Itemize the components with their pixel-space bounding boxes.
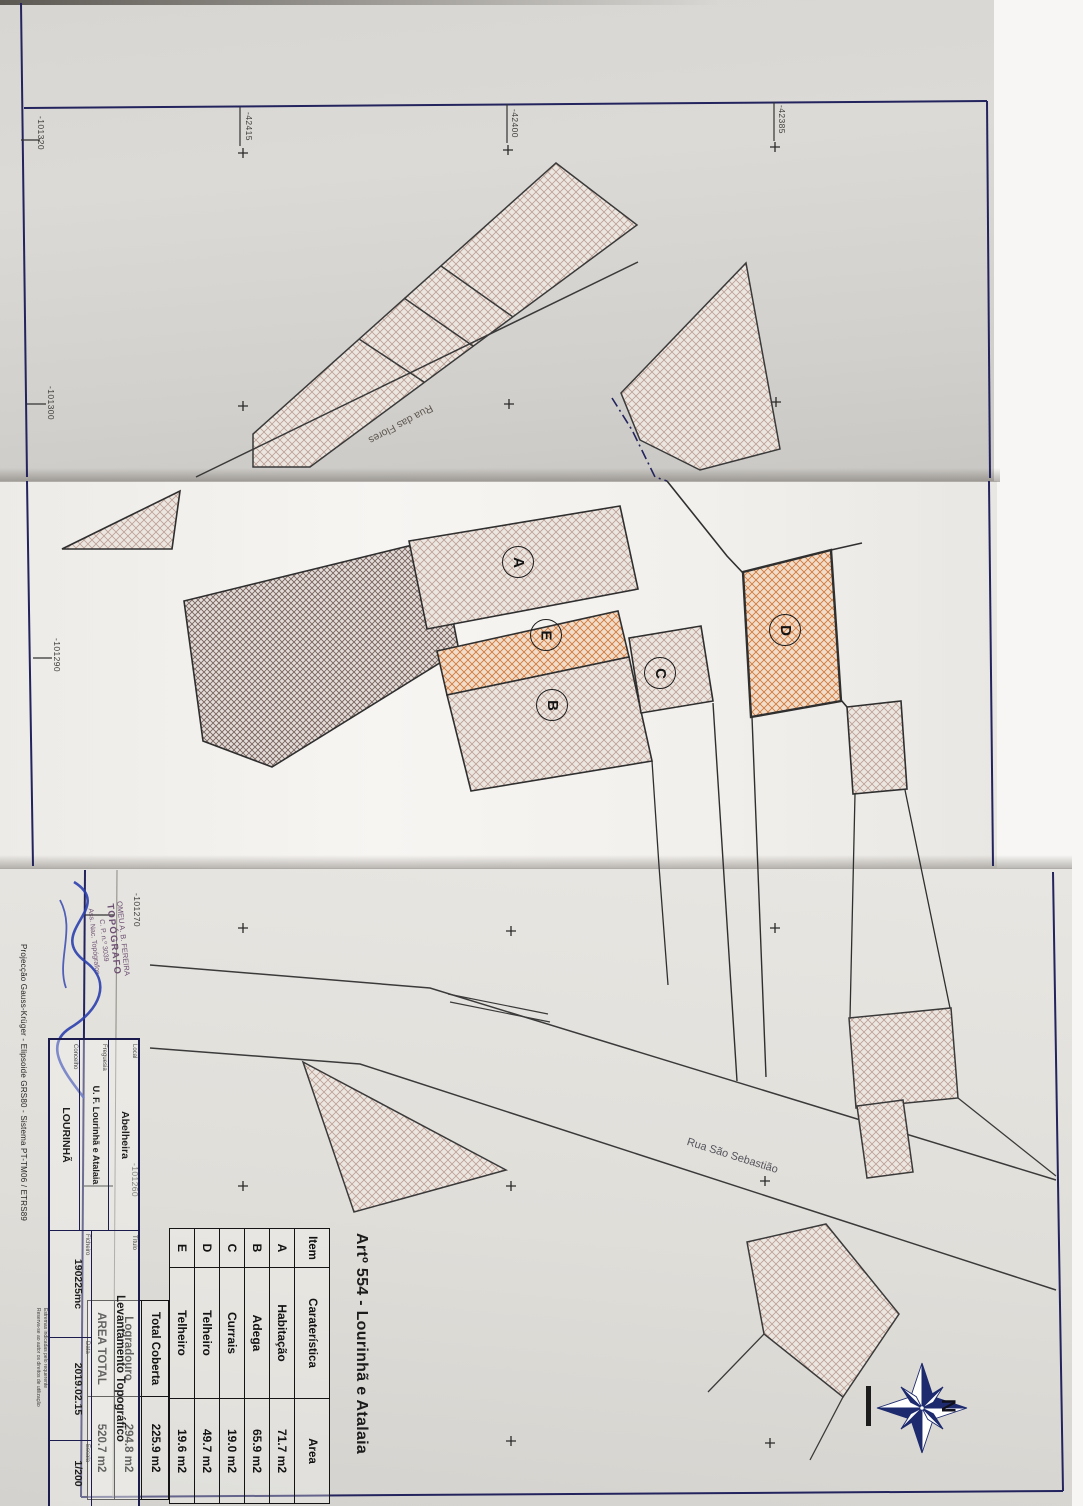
header-area: Area [295, 1399, 330, 1504]
projection-note: Projecção Gauss-Krüger - Elipsoide GRS80… [19, 944, 28, 1221]
coord-top-2: -42400 [510, 109, 520, 138]
surveyor-stamp: OMEU A. B. FEREIRA TOPÓGRAFO C. P. n.º 3… [81, 872, 135, 1007]
field-label: Data [84, 1341, 90, 1437]
hatched-parcel-right-small [857, 1100, 913, 1178]
table-row: E Telheiro 19.6 m2 [170, 1229, 195, 1504]
coord-top-3: -42385 [777, 105, 787, 134]
cell-item: D [195, 1229, 220, 1268]
compass-north-label: N [936, 1399, 958, 1413]
header-caracteristica: Caraterística [295, 1268, 330, 1399]
cell-caracteristica: Telheiro [170, 1268, 195, 1399]
area-table-header: Item Caraterística Area [295, 1229, 330, 1504]
building-label-d: D [769, 614, 801, 646]
note-line: Reserva-se ao autor os direitos de utili… [35, 1308, 42, 1407]
field-value: 2019.02.15 [72, 1341, 84, 1437]
field-label: Ficheiro [84, 1234, 90, 1334]
area-table: Item Caraterística Area A Habitação 71.7… [169, 1228, 330, 1504]
totals-row: Total Coberta 225.9 m2 [142, 1301, 169, 1500]
cell-item: A [270, 1229, 295, 1268]
lane-lines [713, 703, 766, 1081]
note-line: Estremas indicadas pelo requerente [42, 1308, 49, 1407]
cell-area: 19.0 m2 [220, 1399, 245, 1504]
field-data: Data 2019.02.15 [50, 1338, 91, 1441]
field-local: Local Abelheira [108, 1040, 138, 1230]
building-letter: B [544, 700, 561, 711]
cell-item: B [245, 1229, 270, 1268]
coord-left-2: -101300 [46, 386, 56, 420]
building-label-c: C [644, 657, 676, 689]
cell-item: E [170, 1229, 195, 1268]
cell-caracteristica: Currais [220, 1268, 245, 1399]
building-label-b: B [536, 689, 568, 721]
cell-caracteristica: Telheiro [195, 1268, 220, 1399]
building-letter: E [537, 630, 554, 640]
building-letter: D [777, 625, 794, 636]
table-row: D Telheiro 49.7 m2 [195, 1229, 220, 1504]
top-band-linework [196, 163, 780, 481]
field-label: Título [131, 1235, 137, 1502]
cell-area: 65.9 m2 [245, 1399, 270, 1504]
hatched-parcel-right [849, 1008, 958, 1108]
field-ficheiro: Ficheiro 190225mc [50, 1231, 91, 1338]
building-label-a: A [502, 546, 534, 578]
field-value: Abelheira [119, 1044, 131, 1226]
hatched-wedge-northeast [621, 263, 780, 470]
building-letter: C [652, 668, 669, 679]
coord-left-3: -101290 [52, 638, 62, 672]
cell-caracteristica: Adega [245, 1268, 270, 1399]
table-row: C Currais 19.0 m2 [220, 1229, 245, 1504]
field-concelho: Concelho LOURINHÃ [50, 1040, 79, 1230]
total-value: 225.9 m2 [142, 1397, 169, 1500]
field-escala: Escala 1/200 [50, 1441, 91, 1506]
field-label: Concelho [72, 1044, 78, 1226]
left-triangle-polygon [62, 491, 180, 549]
title-block: OMEU A. B. FEREIRA TOPÓGRAFO C. P. n.º 3… [0, 868, 140, 1504]
small-annex-polygon [847, 701, 907, 794]
field-value: LOURINHÃ [60, 1044, 72, 1226]
cell-item: C [220, 1229, 245, 1268]
cell-area: 49.7 m2 [195, 1399, 220, 1504]
hatched-triangle-south [303, 1062, 506, 1212]
field-label: Escala [84, 1444, 90, 1503]
coord-left-1: -101320 [36, 116, 46, 150]
field-value: 1/200 [72, 1444, 84, 1503]
coord-top-1: -42415 [244, 112, 254, 141]
field-label: Local [131, 1044, 137, 1226]
field-value: Levantamento Topográfico [114, 1235, 126, 1502]
table-row: A Habitação 71.7 m2 [270, 1229, 295, 1504]
cell-caracteristica: Habitação [270, 1268, 295, 1399]
field-freguesia: Freguesia U. F. Lourinhã e Atalaia [79, 1040, 109, 1230]
field-label: Freguesia [101, 1044, 107, 1226]
header-item: Item [295, 1229, 330, 1268]
cell-area: 19.6 m2 [170, 1399, 195, 1504]
total-label: Total Coberta [142, 1301, 169, 1397]
compass-bar [866, 1386, 871, 1426]
table-row: B Adega 65.9 m2 [245, 1229, 270, 1504]
sheet-title: Artº 554 - Lourinhã e Atalaia [352, 1233, 370, 1454]
scanned-survey-sheet: -101320 -101300 -101290 -101270 -101260 … [0, 0, 1083, 1506]
building-letter: A [510, 557, 527, 568]
field-value: 190225mc [72, 1234, 84, 1334]
title-block-notes: Estremas indicadas pelo requerente Reser… [35, 1308, 48, 1407]
cell-area: 71.7 m2 [270, 1399, 295, 1504]
building-label-e: E [530, 619, 562, 651]
hatched-parcel-southeast [747, 1224, 899, 1397]
field-titulo: Título Levantamento Topográfico [91, 1231, 138, 1506]
title-block-fields: Local Abelheira Freguesia U. F. Lourinhã… [48, 1038, 140, 1506]
field-value: U. F. Lourinhã e Atalaia [91, 1044, 101, 1226]
